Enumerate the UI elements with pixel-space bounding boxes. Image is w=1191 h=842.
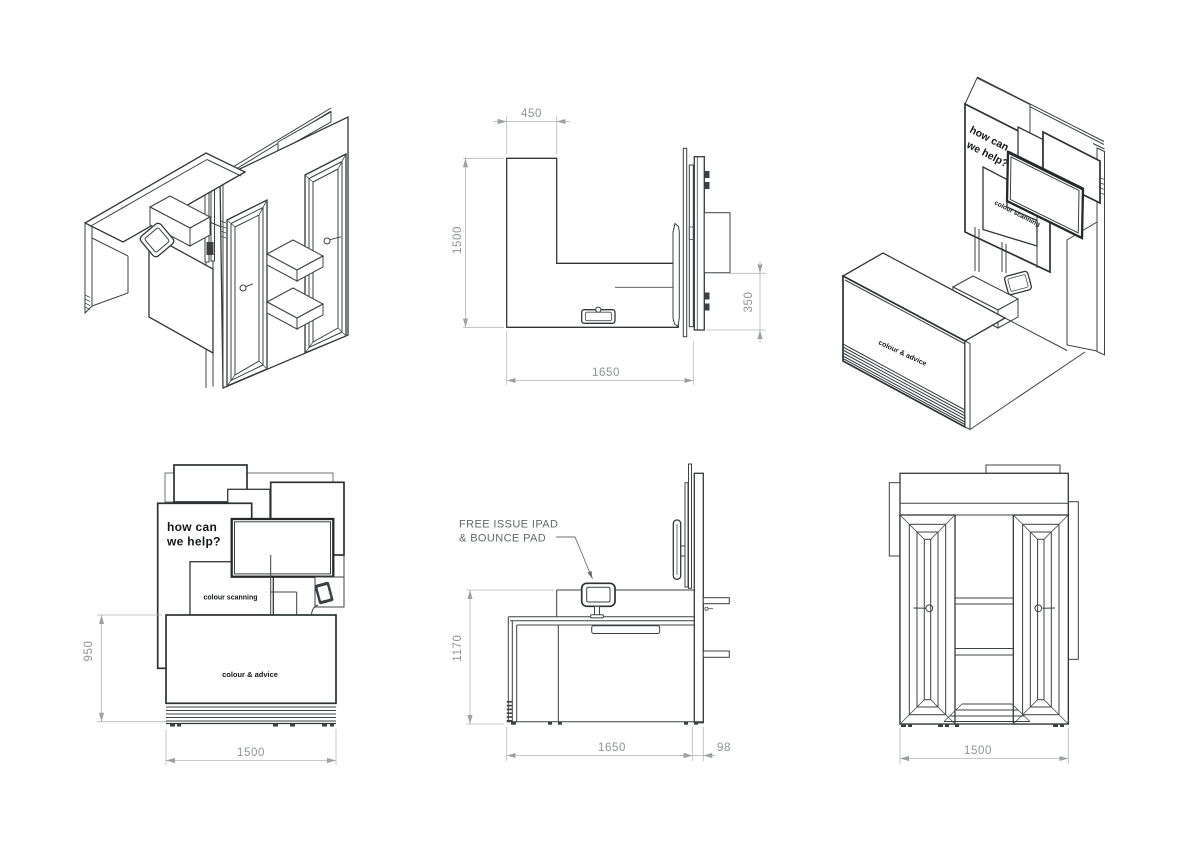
desk-side bbox=[507, 590, 704, 725]
dimension-plan-1650: 1650 bbox=[507, 331, 694, 385]
dimension-plan-1500: 1500 bbox=[452, 158, 504, 327]
ipad-side bbox=[582, 583, 615, 618]
dim-side-height: 1170 bbox=[452, 634, 464, 661]
top-tab bbox=[986, 465, 1060, 473]
door-left-rear bbox=[900, 515, 955, 724]
ipad-iso bbox=[1004, 271, 1032, 296]
left-tab bbox=[889, 483, 900, 556]
headline-line2: we help? bbox=[166, 535, 221, 549]
dimension-side-98: 98 bbox=[680, 727, 731, 761]
advice-label-front: colour & advice bbox=[222, 670, 278, 679]
callout-line1: FREE ISSUE IPAD bbox=[459, 519, 558, 531]
right-tab bbox=[1068, 502, 1078, 660]
view-isometric-front: how can we help? colour scanning bbox=[843, 77, 1105, 430]
drawer-side bbox=[592, 626, 660, 634]
callout-free-issue-ipad: FREE ISSUE IPAD & BOUNCE PAD bbox=[459, 519, 593, 580]
callout-line2: & BOUNCE PAD bbox=[459, 533, 546, 545]
dimension-side-1170: 1170 bbox=[452, 590, 554, 724]
dimension-plan-450: 450 bbox=[493, 108, 571, 154]
door-right-rear bbox=[1013, 515, 1068, 724]
view-front: how can we help? colour scanning colour … bbox=[83, 465, 344, 765]
view-rear: 1500 bbox=[889, 465, 1078, 764]
desk-iso: colour & advice bbox=[843, 253, 1085, 430]
mount-bracket bbox=[207, 242, 214, 255]
dim-rear-width: 1500 bbox=[964, 745, 992, 757]
callout-leader bbox=[556, 537, 593, 579]
scanning-label-front: colour scanning bbox=[203, 595, 257, 602]
ipad-plan bbox=[582, 307, 615, 323]
dim-plan-width: 1650 bbox=[592, 367, 620, 379]
shelf-plan bbox=[704, 213, 730, 273]
dimension-front-1500: 1500 bbox=[166, 729, 336, 765]
dim-front-width: 1500 bbox=[237, 747, 265, 759]
cad-drawing: 450 1500 350 1650 bbox=[0, 0, 1191, 842]
dimension-plan-350: 350 bbox=[707, 261, 766, 343]
drawing-sheet: 450 1500 350 1650 bbox=[0, 0, 1191, 842]
desk-plan-outline bbox=[507, 158, 679, 327]
tv-edge-side bbox=[673, 520, 685, 579]
slat-ticks-side bbox=[507, 701, 513, 722]
dim-plan-depth: 1500 bbox=[452, 226, 464, 254]
dim-plan-panel-offset: 350 bbox=[743, 292, 755, 313]
screen-edge-plan bbox=[673, 224, 679, 327]
tv-screen-front bbox=[232, 519, 334, 577]
view-side: FREE ISSUE IPAD & BOUNCE PAD 1170 1650 9… bbox=[452, 464, 731, 761]
dim-side-width: 1650 bbox=[598, 742, 626, 754]
dim-front-height: 950 bbox=[83, 641, 95, 662]
dim-plan-return-width: 450 bbox=[521, 108, 542, 120]
dimension-front-950: 950 bbox=[83, 615, 168, 722]
wall-brackets-side bbox=[703, 598, 729, 658]
back-panel-side bbox=[694, 473, 703, 722]
door-left bbox=[227, 200, 267, 386]
view-plan: 450 1500 350 1650 bbox=[452, 108, 766, 385]
view-isometric-rear bbox=[85, 108, 348, 388]
headline-line1: how can bbox=[167, 520, 217, 534]
desk-front: colour & advice bbox=[166, 615, 336, 727]
wall-face bbox=[1067, 222, 1097, 351]
dim-side-panel-depth: 98 bbox=[717, 742, 731, 754]
panel-plan bbox=[683, 148, 730, 336]
base-slats-front bbox=[166, 707, 336, 724]
dimension-rear-1500: 1500 bbox=[900, 728, 1068, 764]
dimension-side-1650: 1650 bbox=[507, 727, 693, 761]
